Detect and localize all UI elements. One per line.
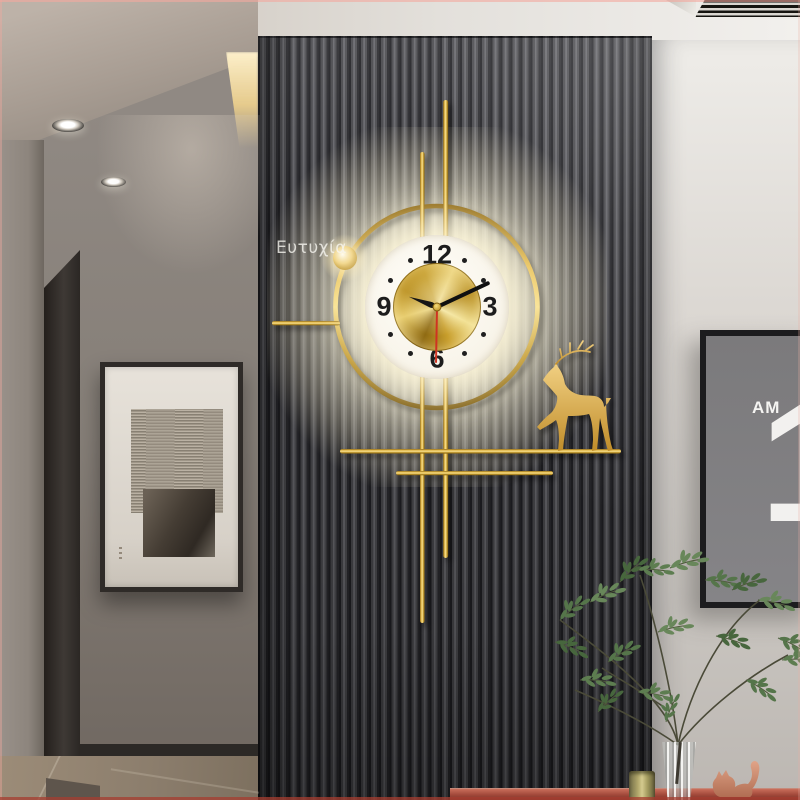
hour-dot — [481, 332, 486, 337]
door-frame — [44, 250, 80, 792]
clock-face: 12 3 6 9 — [365, 235, 509, 379]
slat-panel-wall — [258, 36, 652, 800]
artwork-dark-block — [143, 489, 215, 557]
hallway-floor — [0, 756, 258, 800]
plant-stem — [675, 742, 682, 784]
hour-dot — [408, 351, 413, 356]
hallway-side-wall — [0, 140, 44, 788]
hour-dot — [462, 351, 467, 356]
poster-big-digit: 1 — [760, 378, 800, 548]
hour-dot — [388, 332, 393, 337]
clock-center-cap — [433, 303, 442, 312]
wall-poster: AM 1 — [700, 330, 800, 608]
artwork-signature — [119, 547, 122, 562]
wall-light-spot — [88, 115, 260, 285]
ac-vent-icon — [694, 0, 800, 19]
room-scene: AM 1 — [0, 0, 800, 800]
hour-dot — [462, 258, 467, 263]
hallway — [0, 0, 258, 800]
hour-dot — [388, 278, 393, 283]
hour-dot — [408, 258, 413, 263]
downlight-icon — [52, 119, 84, 132]
clock-numeral-9: 9 — [376, 292, 391, 323]
panel-shading — [258, 38, 652, 800]
glass-cup — [629, 771, 655, 800]
framed-artwork — [100, 362, 243, 592]
watermark-text: Ευτυχία — [276, 238, 347, 258]
console-table — [450, 788, 800, 800]
clock-numeral-3: 3 — [482, 292, 497, 323]
